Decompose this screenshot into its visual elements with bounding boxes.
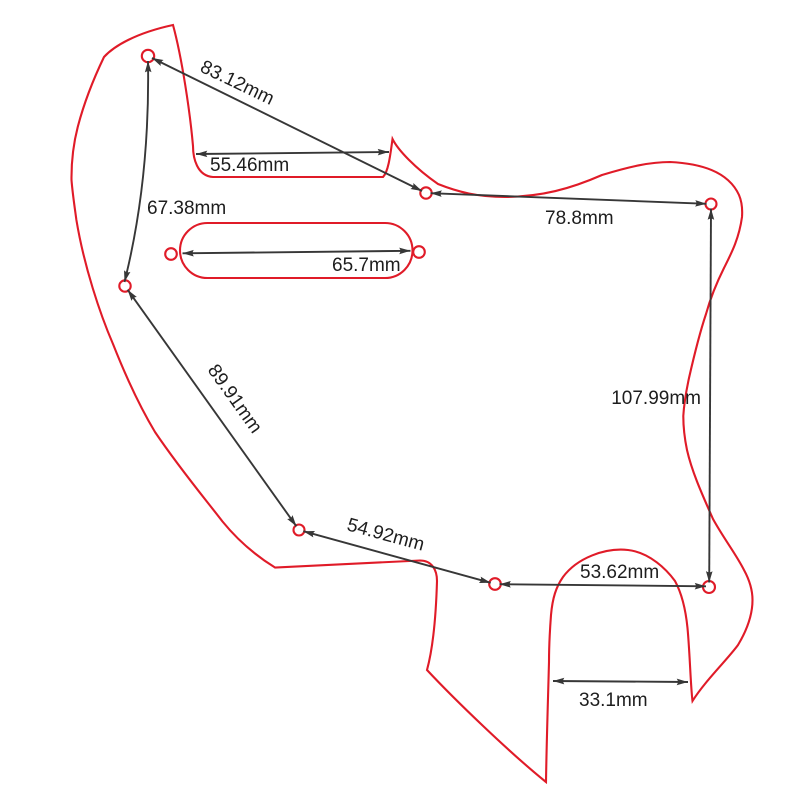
svg-text:53.62mm: 53.62mm — [580, 562, 659, 583]
svg-text:83.12mm: 83.12mm — [197, 57, 278, 110]
svg-text:67.38mm: 67.38mm — [147, 198, 226, 219]
svg-text:55.46mm: 55.46mm — [210, 155, 289, 176]
svg-text:89.91mm: 89.91mm — [203, 361, 266, 438]
svg-text:33.1mm: 33.1mm — [579, 690, 648, 711]
svg-text:78.8mm: 78.8mm — [545, 208, 614, 229]
svg-text:54.92mm: 54.92mm — [345, 515, 427, 556]
svg-text:65.7mm: 65.7mm — [332, 255, 401, 276]
svg-text:107.99mm: 107.99mm — [611, 388, 701, 409]
